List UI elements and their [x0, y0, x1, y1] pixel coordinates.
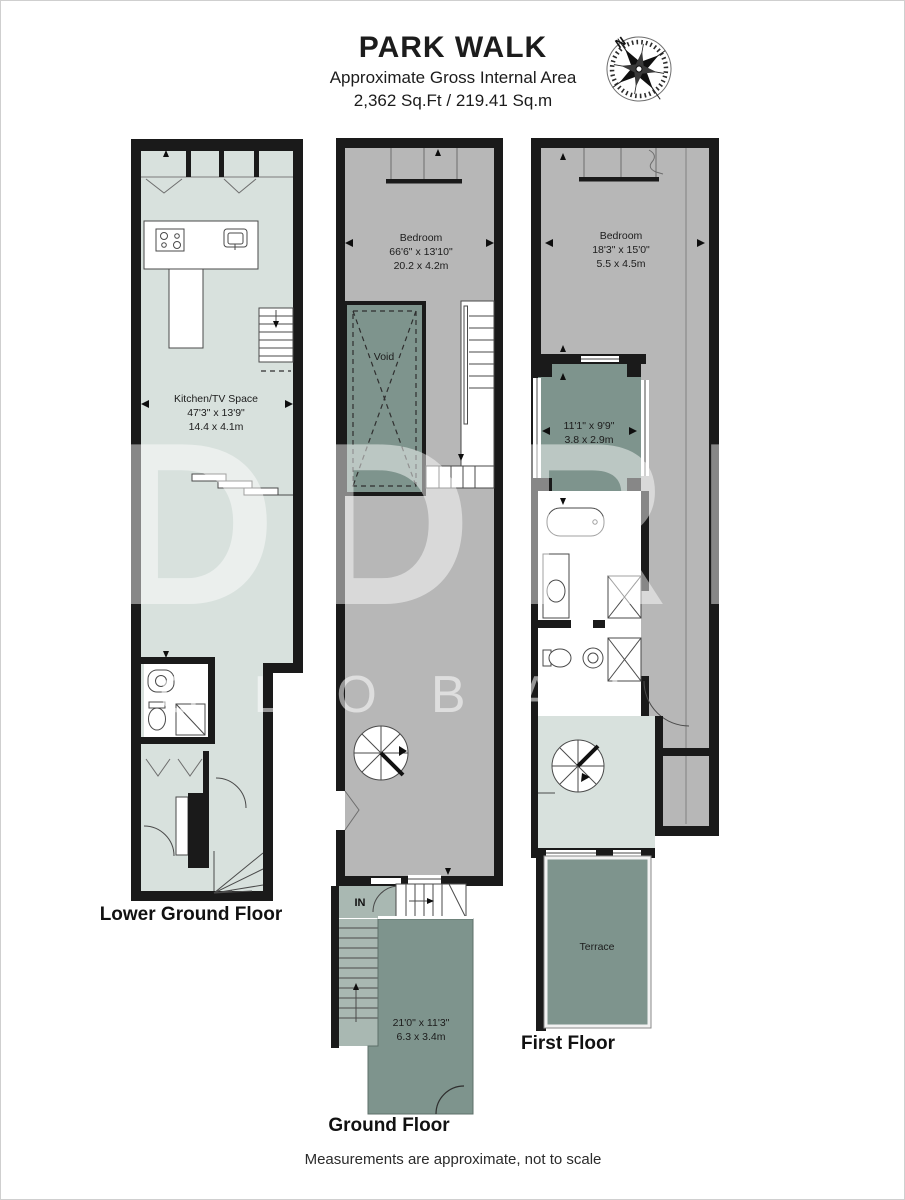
front-dimensions-imperial: 21'0" x 11'3": [393, 1017, 450, 1029]
bedroom-dimensions-metric: 20.2 x 4.2m: [394, 260, 449, 272]
void-label: Void: [374, 351, 395, 363]
void-area: Void: [343, 301, 426, 496]
label-lower-ground-floor: Lower Ground Floor: [61, 904, 321, 926]
room-name: Kitchen/TV Space: [174, 393, 258, 405]
toilet-icon: [149, 702, 166, 730]
staircase: [259, 308, 293, 371]
label-ground-floor: Ground Floor: [289, 1115, 489, 1137]
bedroom-name: Bedroom: [400, 232, 443, 244]
label-first-floor: First Floor: [468, 1033, 668, 1055]
spiral-staircase: [354, 726, 408, 780]
floorplan-page: PARK WALK Approximate Gross Internal Are…: [0, 0, 905, 1200]
room-dimensions-imperial: 47'3" x 13'9": [187, 407, 245, 419]
bedroom-dimensions-imperial: 66'6" x 13'10": [389, 246, 453, 258]
floorplan-ground: Bedroom 66'6" x 13'10" 20.2 x 4.2m Void: [329, 138, 509, 1133]
floorplan-first: Bedroom 18'3" x 15'0" 5.5 x 4.5m 11'1" x…: [529, 136, 721, 1038]
disclaimer-note: Measurements are approximate, not to sca…: [153, 1151, 753, 1168]
round-basin-icon: [583, 648, 603, 668]
dressing-dimensions-imperial: 11'1" x 9'9": [564, 420, 615, 432]
bedroom-dimensions-metric: 5.5 x 4.5m: [596, 258, 645, 270]
room-dimensions-metric: 14.4 x 4.1m: [189, 421, 244, 433]
bathroom: [141, 651, 215, 744]
bathtub-icon: [547, 508, 604, 536]
dressing-room: 11'1" x 9'9" 3.8 x 2.9m: [533, 364, 649, 491]
compass-icon: N: [599, 29, 679, 109]
toilet-icon: [543, 649, 571, 667]
front-dimensions-metric: 6.3 x 3.4m: [396, 1031, 445, 1043]
shower-icon: [176, 704, 205, 735]
vanity-sink-icon: [543, 554, 569, 618]
corner-basin-icon: [148, 670, 174, 692]
floorplan-lower-ground: Kitchen/TV Space 47'3" x 13'9" 14.4 x 4.…: [126, 139, 311, 909]
spiral-staircase: [552, 740, 604, 792]
terrace-area: Terrace: [536, 856, 651, 1031]
bedroom-name: Bedroom: [600, 230, 643, 242]
terrace-label: Terrace: [579, 941, 614, 953]
dressing-dimensions-metric: 3.8 x 2.9m: [564, 434, 613, 446]
entrance-in-label: IN: [355, 897, 366, 909]
entry-stairs: [396, 884, 466, 918]
front-garden: 21'0" x 11'3" 6.3 x 3.4m: [339, 916, 473, 1114]
bedroom-dimensions-imperial: 18'3" x 15'0": [592, 244, 650, 256]
